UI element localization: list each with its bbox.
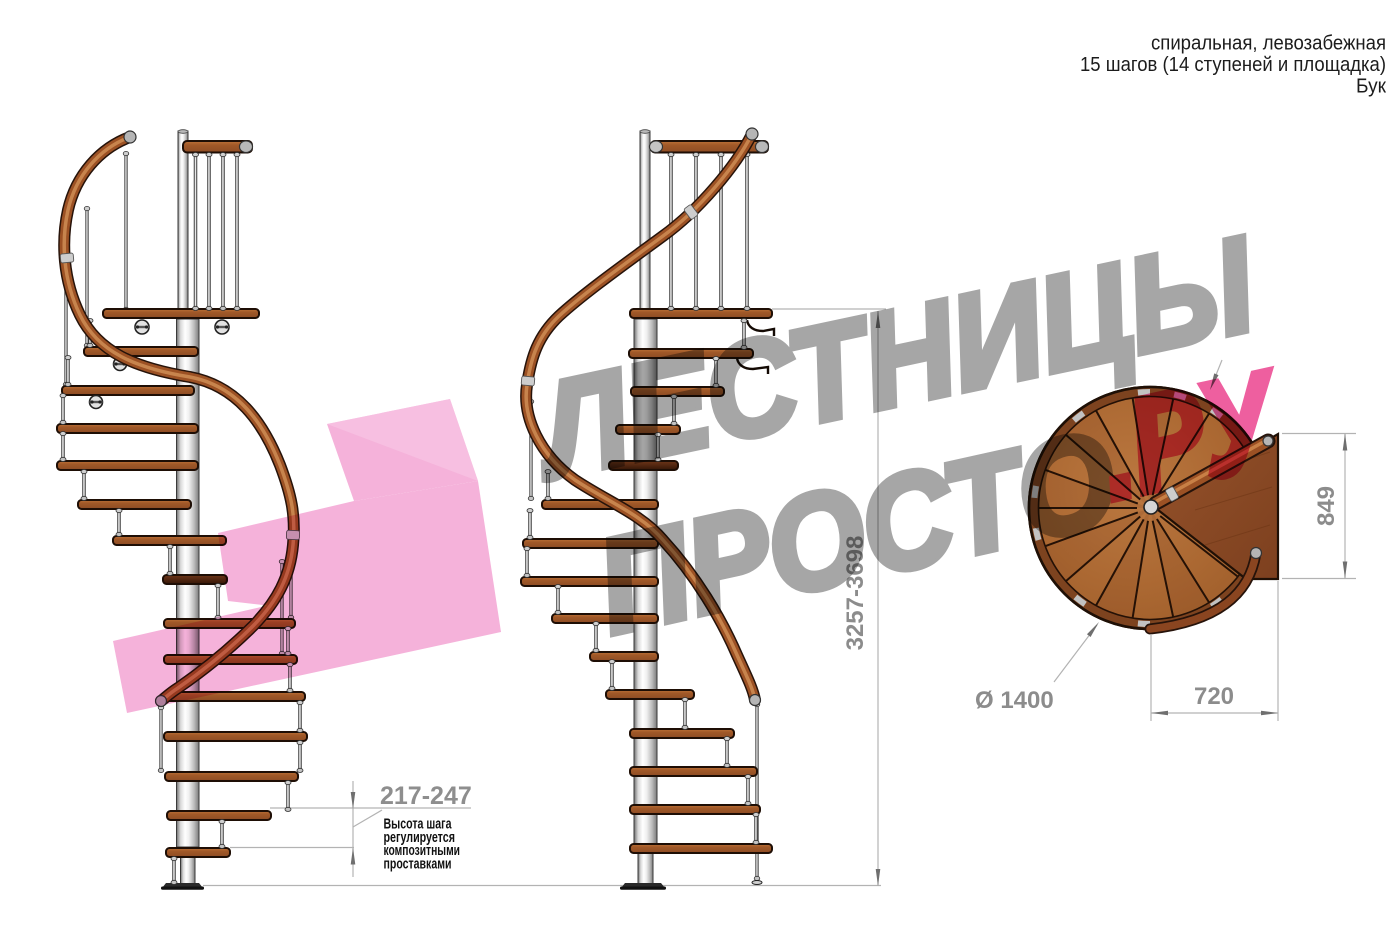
svg-text:спиральная, левозабежная: спиральная, левозабежная (1151, 33, 1386, 55)
svg-text:849: 849 (1313, 486, 1340, 526)
svg-text:217-247: 217-247 (380, 782, 472, 810)
svg-text:проставками: проставками (384, 856, 452, 872)
svg-text:15 шагов (14 ступеней и площад: 15 шагов (14 ступеней и площадка) (1080, 54, 1386, 76)
svg-text:Бук: Бук (1356, 76, 1386, 98)
svg-text:Ø 1400: Ø 1400 (975, 687, 1054, 714)
svg-text:720: 720 (1194, 683, 1234, 710)
